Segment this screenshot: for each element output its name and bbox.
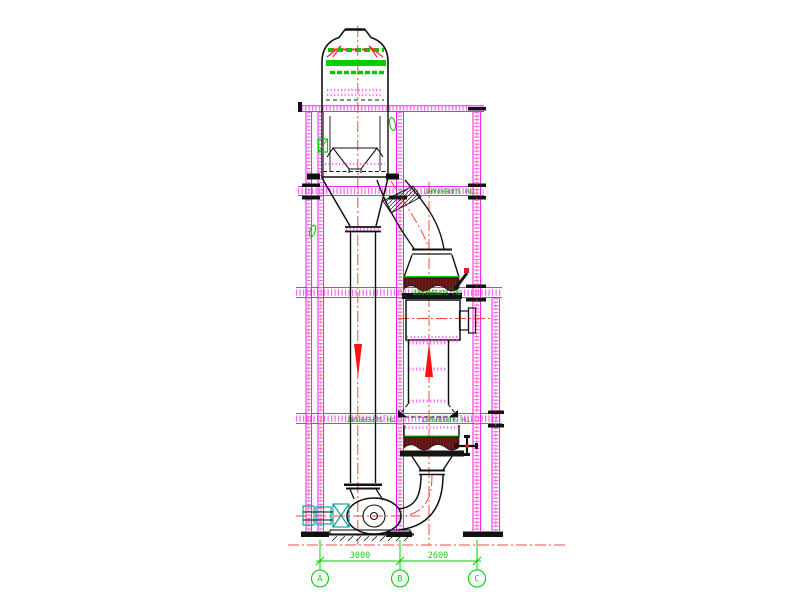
collector-flange-lower	[400, 451, 464, 457]
vessel-hopper-and-downpipe	[322, 178, 388, 483]
platform-beam-top	[298, 106, 484, 112]
flow-arrows	[354, 342, 433, 377]
collector-expansion-cone	[404, 255, 459, 277]
grid-label-a: A	[317, 575, 323, 585]
platform-beam-middle	[296, 288, 502, 298]
access-flange-inner	[460, 311, 469, 330]
collector-outlet-cone	[412, 457, 452, 471]
discharge-elbow	[399, 475, 443, 530]
grid-and-dimensions: 3000 2600 A B C	[312, 540, 486, 587]
cad-drawing-canvas: 3000 2600 A B C TH_SUPERPART TH_SUPERPAR…	[0, 0, 800, 600]
flow-arrow-up	[425, 342, 433, 377]
grid-label-c: C	[474, 575, 479, 585]
dust-bin	[406, 300, 476, 341]
bin-body	[406, 300, 460, 340]
internal-funnel	[327, 148, 383, 173]
dim-label-ab: 3000	[350, 551, 370, 561]
material-band-lower	[404, 437, 459, 450]
centerline-discharge-elbow	[399, 475, 432, 517]
dim-label-bc: 2600	[428, 551, 448, 561]
grid-label-b: B	[397, 575, 402, 585]
layer-labels: TH_SUPERPART TH_SUPERPART TH_SUPERPART T…	[346, 187, 473, 424]
weld-symbol-upper	[388, 117, 396, 131]
weld-symbol-lower	[308, 225, 316, 238]
layer-label-lower-beam-right: TH_SUPERPART	[421, 415, 470, 423]
flow-arrow-down	[354, 344, 362, 377]
lower-collector	[400, 425, 478, 475]
layer-label-lower-beam-left: TH_SUPERPART	[346, 415, 395, 423]
layer-label-upper-beam: TH_SUPERPART	[424, 187, 473, 195]
hopper-cone	[322, 178, 388, 226]
layer-label-middle-beam: TH_SUPERPART	[412, 288, 461, 296]
spray-bar-2	[326, 60, 386, 66]
elbow-inner-wall	[399, 475, 421, 509]
